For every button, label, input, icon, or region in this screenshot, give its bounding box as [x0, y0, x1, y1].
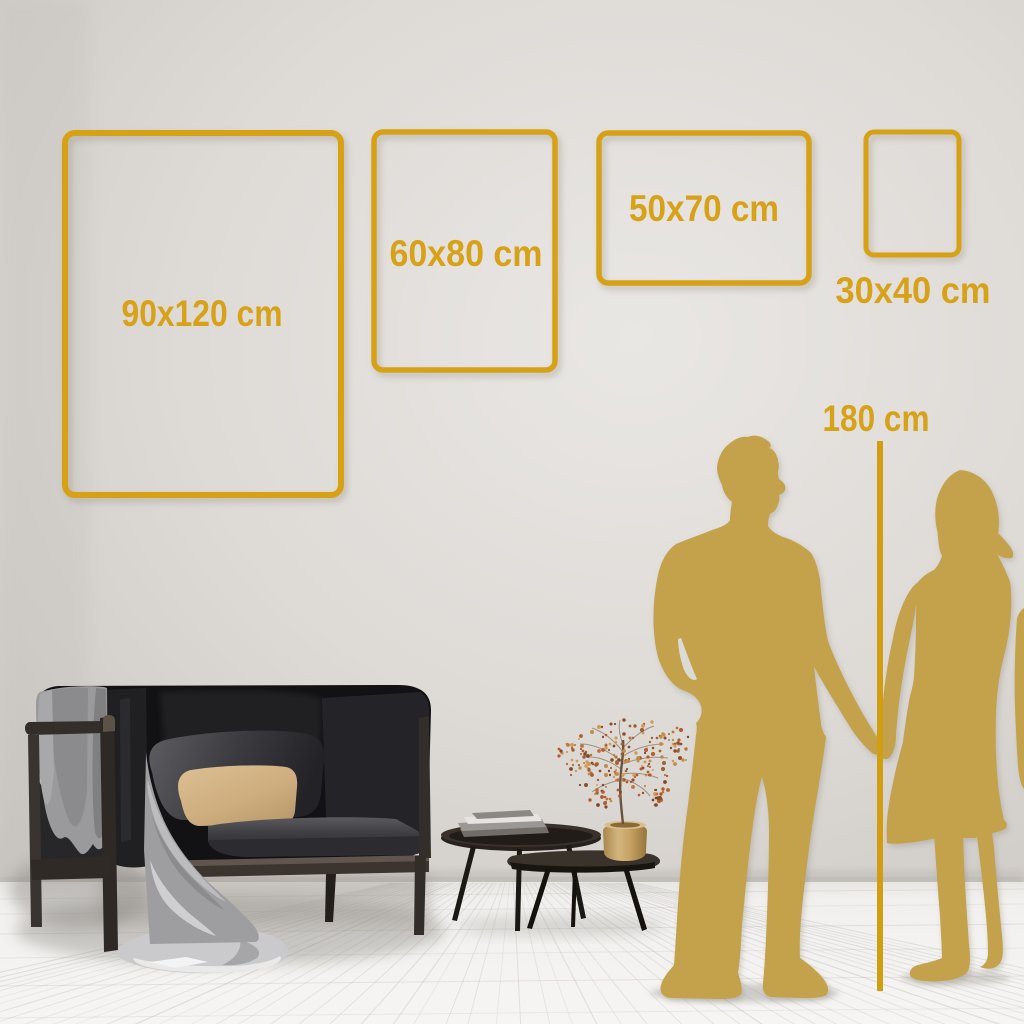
svg-text:180 cm: 180 cm [823, 398, 930, 439]
svg-text:30x40 cm: 30x40 cm [836, 270, 991, 311]
svg-text:50x70 cm: 50x70 cm [629, 188, 779, 229]
svg-text:90x120 cm: 90x120 cm [122, 293, 283, 334]
svg-text:60x80 cm: 60x80 cm [390, 233, 543, 274]
